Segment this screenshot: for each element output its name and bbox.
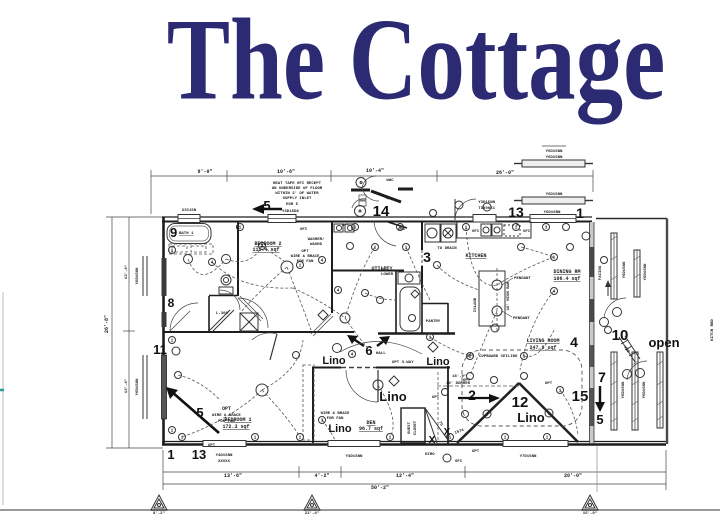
svg-text:X: X (429, 435, 436, 446)
svg-text:PENDANT: PENDANT (514, 277, 531, 281)
svg-text:DINING RM: DINING RM (553, 269, 580, 275)
svg-text:Lino: Lino (426, 356, 449, 368)
svg-text:FOR FAN: FOR FAN (327, 417, 344, 421)
svg-text:50'-2": 50'-2" (371, 485, 389, 491)
svg-text:106.4 sqf: 106.4 sqf (553, 276, 580, 282)
svg-text:Lino: Lino (328, 423, 351, 435)
svg-text:ON UNDERSIDE OF FLOOR: ON UNDERSIDE OF FLOOR (272, 187, 323, 191)
svg-text:L-309: L-309 (216, 312, 229, 316)
svg-text:7: 7 (598, 369, 606, 385)
svg-text:9: 9 (170, 225, 177, 240)
svg-text:Y3D15NN: Y3D15NN (346, 455, 363, 459)
svg-text:OPT: OPT (222, 406, 231, 412)
svg-text:Y7D15NN: Y7D15NN (520, 455, 537, 459)
svg-text:GFI: GFI (455, 460, 463, 464)
svg-text:OPT: OPT (545, 382, 553, 386)
svg-text:Y4D15NN: Y4D15NN (216, 454, 233, 458)
svg-text:13'-4": 13'-4" (124, 265, 129, 279)
svg-text:11: 11 (153, 342, 167, 357)
svg-text:GUEST: GUEST (408, 421, 412, 434)
svg-text:Y3D15NN: Y3D15NN (478, 201, 495, 205)
svg-text:Y6D15NN: Y6D15NN (623, 261, 627, 278)
svg-text:12'-4": 12'-4" (396, 473, 414, 479)
svg-text:Y3D15D8: Y3D15D8 (282, 210, 299, 214)
svg-text:6: 6 (365, 343, 372, 358)
svg-text:15: 15 (572, 388, 589, 405)
svg-text:TO DRAIN: TO DRAIN (437, 247, 457, 251)
svg-text:96.7 sqf: 96.7 sqf (359, 426, 383, 432)
svg-text:Lino: Lino (379, 389, 406, 404)
svg-text:16' HIGH BAR: 16' HIGH BAR (506, 281, 511, 310)
svg-text:13'-6": 13'-6" (224, 473, 242, 479)
svg-text:Lino: Lino (322, 355, 345, 367)
svg-text:12: 12 (512, 394, 529, 411)
svg-text:Y6D15NN: Y6D15NN (136, 378, 140, 395)
svg-text:26'-8": 26'-8" (104, 315, 110, 333)
svg-text:T3X90X1: T3X90X1 (478, 207, 495, 211)
svg-text:13: 13 (192, 447, 206, 462)
svg-text:5: 5 (196, 405, 203, 420)
svg-text:PANTRY: PANTRY (426, 320, 441, 324)
svg-text:DIMO: DIMO (425, 453, 435, 457)
svg-text:Y6D15NN: Y6D15NN (136, 267, 140, 284)
svg-text:WASHER/: WASHER/ (308, 237, 325, 242)
svg-text:PENDANT: PENDANT (513, 317, 530, 321)
svg-text:HEAT TAPE GFI RECEPT: HEAT TAPE GFI RECEPT (273, 182, 322, 186)
svg-text:open: open (648, 335, 679, 350)
svg-text:XXXXX: XXXXX (218, 460, 231, 464)
svg-text:Y6D15NN: Y6D15NN (546, 156, 563, 160)
svg-text:KITCH RND: KITCH RND (711, 319, 715, 341)
svg-text:Y6D15NN: Y6D15NN (546, 193, 563, 197)
svg-text:EGR 5: EGR 5 (286, 203, 299, 207)
svg-text:OPT: OPT (463, 379, 471, 383)
svg-text:WITHIN 2' OF WATER: WITHIN 2' OF WATER (275, 191, 319, 196)
svg-text:WASHD: WASHD (310, 243, 323, 247)
svg-text:115.4 sqf: 115.4 sqf (252, 247, 279, 253)
svg-text:14: 14 (373, 203, 390, 220)
svg-text:5: 5 (596, 412, 603, 427)
svg-text:OPT: OPT (432, 396, 440, 400)
svg-text:5: 5 (263, 198, 270, 213)
svg-text:172.3 sqf: 172.3 sqf (222, 424, 249, 430)
svg-text:The Cottage: The Cottage (167, 0, 666, 124)
svg-text:Lino: Lino (517, 410, 544, 425)
svg-text:X3C15N: X3C15N (182, 209, 197, 213)
svg-text:3: 3 (423, 249, 431, 265)
svg-text:WWC: WWC (386, 179, 394, 183)
svg-text:LIVING ROOM: LIVING ROOM (526, 338, 559, 344)
svg-text:GFI: GFI (472, 230, 480, 234)
svg-text:OPT: OPT (208, 444, 216, 448)
svg-text:Y6D15NN: Y6D15NN (544, 211, 561, 215)
svg-text:10'-4": 10'-4" (366, 168, 384, 174)
svg-text:FACING: FACING (599, 265, 603, 280)
svg-text:13'-4": 13'-4" (124, 379, 129, 393)
svg-text:GFI: GFI (523, 230, 531, 234)
svg-text:LOWER: LOWER (381, 273, 394, 277)
svg-text:Y6D15NN: Y6D15NN (643, 381, 647, 398)
svg-text:4: 4 (570, 334, 578, 350)
svg-text:ISLAND: ISLAND (474, 297, 478, 312)
svg-text:CLOSET: CLOSET (414, 420, 418, 435)
svg-text:KITCHEN: KITCHEN (465, 253, 486, 259)
svg-text:13: 13 (508, 204, 524, 220)
svg-text:WIRE & BRACE: WIRE & BRACE (321, 412, 350, 416)
svg-text:BATH 1: BATH 1 (179, 232, 194, 236)
svg-text:26'-0": 26'-0" (496, 170, 514, 176)
svg-text:OPT: OPT (472, 450, 480, 454)
svg-text:OPT: OPT (301, 250, 309, 254)
svg-text:OPT 3-WAY: OPT 3-WAY (392, 361, 414, 365)
svg-text:1: 1 (576, 205, 584, 221)
svg-text:HALL: HALL (376, 352, 386, 356)
svg-text:Y6D15NN: Y6D15NN (644, 263, 648, 280)
svg-text:Y6D15NN: Y6D15NN (546, 150, 563, 154)
svg-text:SUPPLY INLET: SUPPLY INLET (283, 197, 312, 201)
svg-text:WIRE & BRACE: WIRE & BRACE (291, 255, 320, 259)
svg-text:Y6D15NN: Y6D15NN (622, 381, 626, 398)
svg-text:OPT. CUPBOARD CEILING: OPT. CUPBOARD CEILING (467, 355, 518, 359)
svg-text:20'-0": 20'-0" (564, 473, 582, 479)
svg-text:OPT: OPT (381, 268, 389, 272)
svg-text:BEDROOM 1: BEDROOM 1 (224, 417, 251, 423)
svg-text:8: 8 (168, 296, 175, 310)
svg-text:2: 2 (468, 387, 476, 403)
svg-text:4'-2": 4'-2" (314, 473, 329, 479)
svg-text:OPT: OPT (342, 224, 350, 228)
svg-text:1: 1 (167, 447, 174, 462)
svg-text:GFI: GFI (300, 228, 308, 232)
svg-text:10'-6": 10'-6" (277, 169, 295, 175)
svg-text:9'-0": 9'-0" (197, 169, 212, 175)
